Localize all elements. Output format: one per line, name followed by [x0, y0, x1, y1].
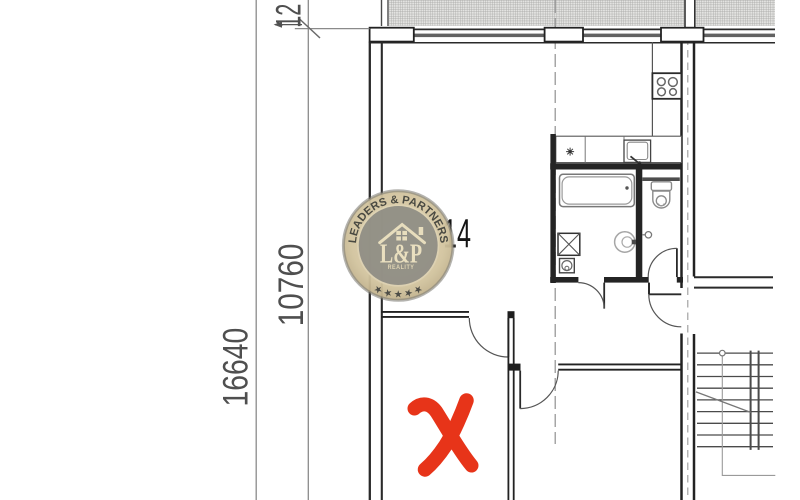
svg-text:REALITY: REALITY	[388, 265, 415, 271]
svg-text:10760: 10760	[272, 244, 311, 327]
svg-text:16640: 16640	[216, 328, 256, 407]
svg-text:12: 12	[271, 4, 309, 28]
svg-text:★: ★	[394, 289, 403, 300]
